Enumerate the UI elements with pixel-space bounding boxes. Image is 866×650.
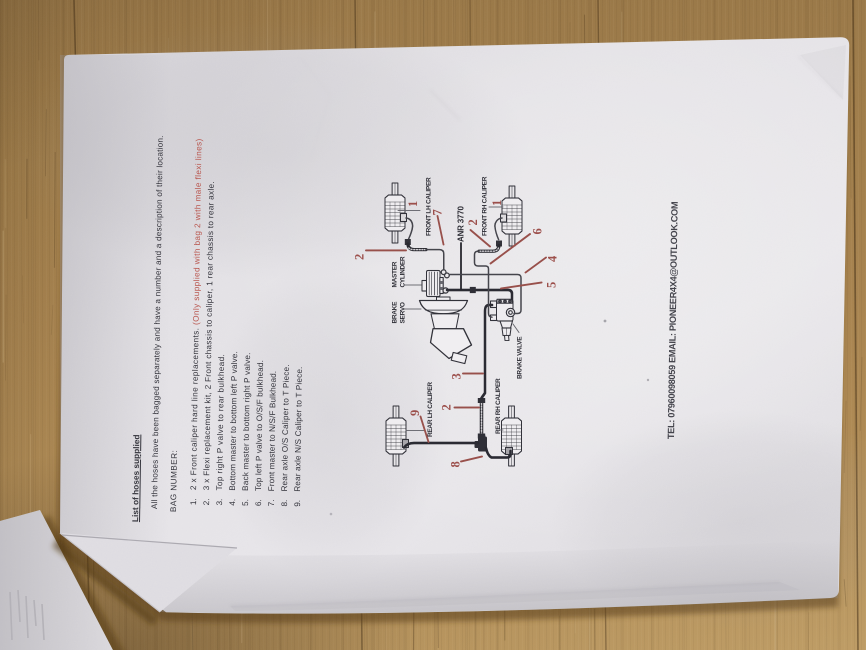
svg-text:6: 6 [531,228,545,234]
svg-text:2: 2 [440,404,454,410]
svg-text:7: 7 [431,209,445,215]
svg-text:8: 8 [449,461,463,467]
svg-text:SERVO: SERVO [400,302,407,323]
svg-text:BRAKE VALVE: BRAKE VALVE [517,336,524,379]
svg-text:REAR RH CALIPER: REAR RH CALIPER [495,378,502,434]
svg-text:3: 3 [450,373,464,379]
svg-text:ANR 3770: ANR 3770 [457,205,466,242]
svg-text:2: 2 [353,254,367,260]
svg-text:4: 4 [546,255,560,262]
svg-text:MASTER: MASTER [392,261,399,287]
svg-text:CYLINDER: CYLINDER [400,256,407,287]
svg-text:9: 9 [408,410,422,416]
svg-text:FRONT RH CALIPER: FRONT RH CALIPER [482,176,489,236]
svg-text:BRAKE: BRAKE [392,301,399,324]
svg-text:1: 1 [490,200,504,206]
svg-text:1: 1 [406,201,420,207]
svg-text:5: 5 [545,282,559,288]
svg-text:FRONT LH CALIPER: FRONT LH CALIPER [426,177,433,236]
svg-text:2: 2 [466,219,480,225]
svg-text:REAR LH CALIPER: REAR LH CALIPER [427,382,434,437]
